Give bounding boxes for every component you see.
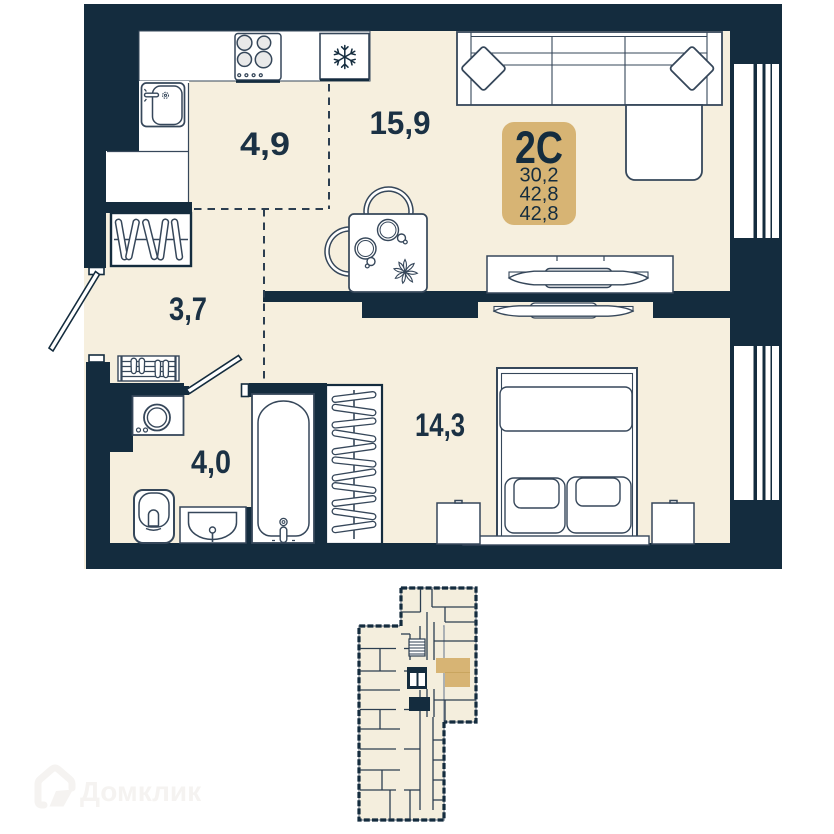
svg-text:15,9: 15,9 (370, 105, 431, 141)
svg-text:14,3: 14,3 (415, 407, 465, 443)
svg-text:Домклик: Домклик (80, 776, 202, 807)
svg-text:42,8: 42,8 (520, 203, 559, 225)
svg-text:4,9: 4,9 (240, 126, 290, 162)
svg-text:4,0: 4,0 (191, 444, 231, 480)
svg-text:3,7: 3,7 (169, 291, 207, 327)
